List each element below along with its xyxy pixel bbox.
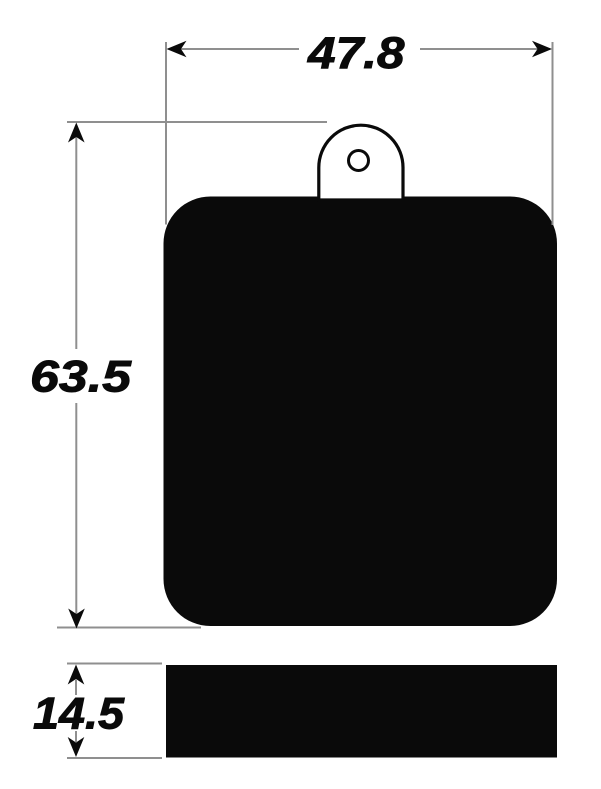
svg-text:14.5: 14.5 — [33, 690, 125, 739]
svg-text:63.5: 63.5 — [30, 353, 133, 402]
svg-text:47.8: 47.8 — [307, 29, 405, 78]
